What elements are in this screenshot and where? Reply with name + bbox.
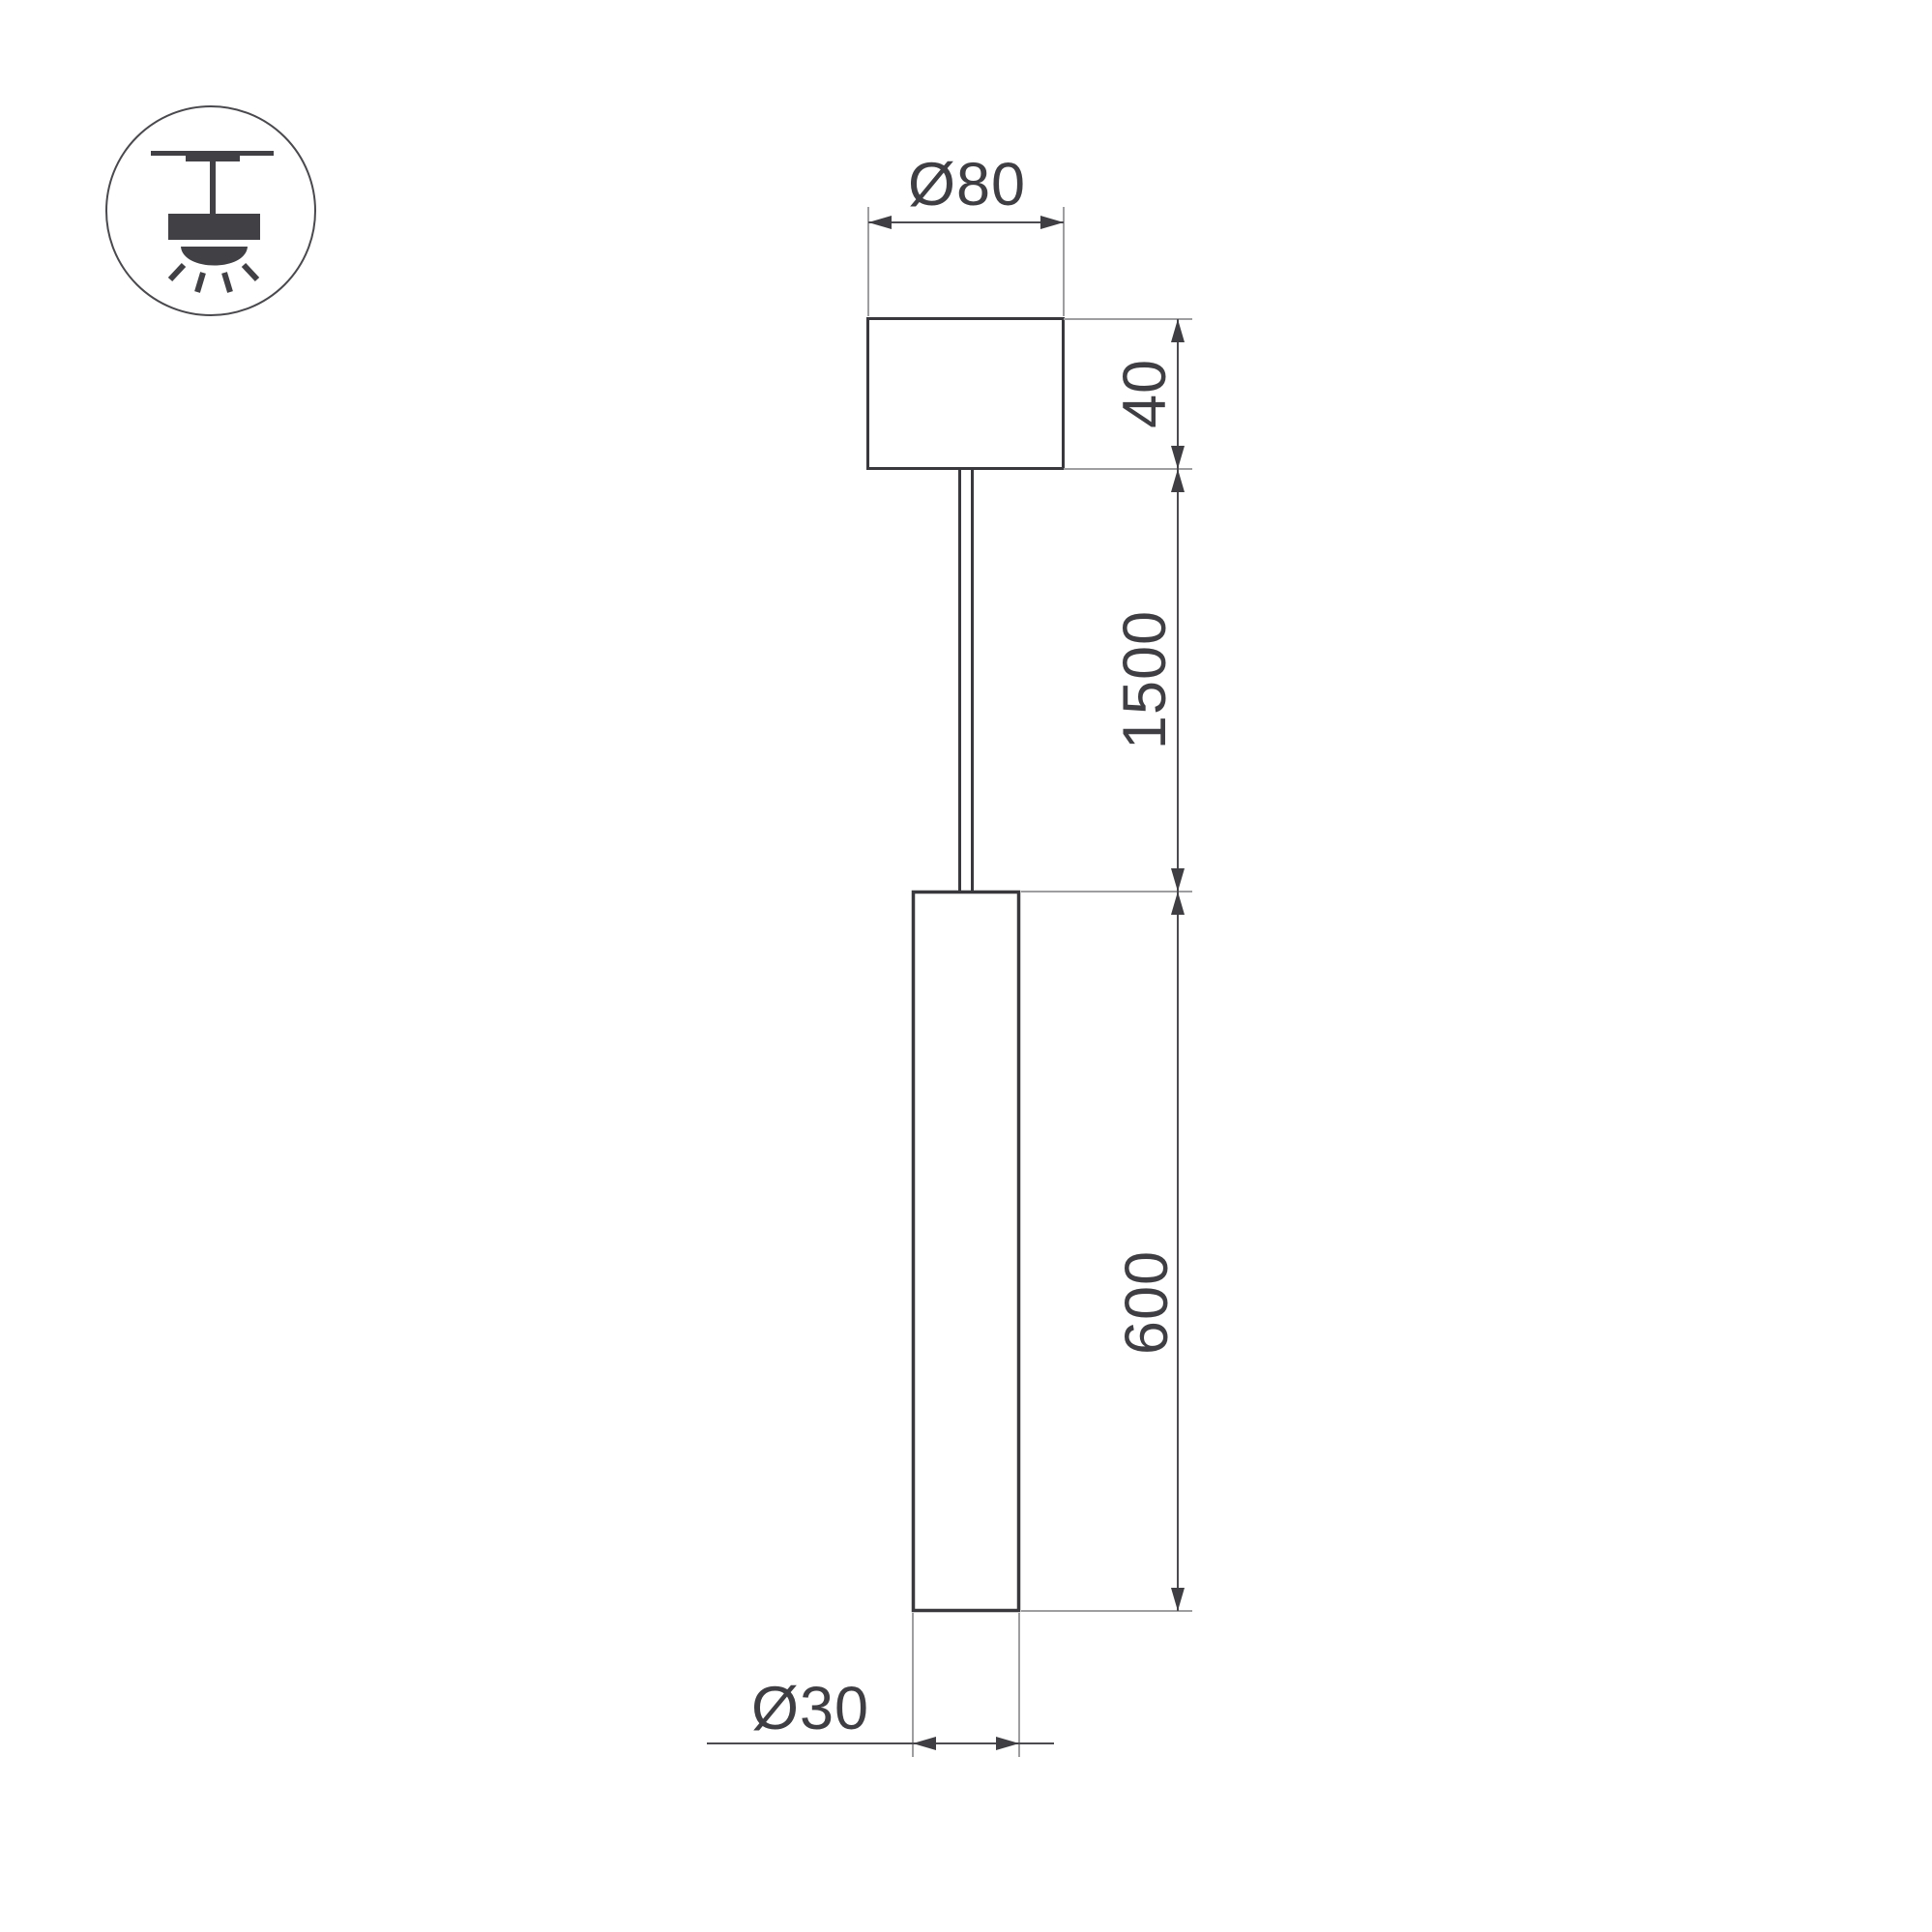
arrowhead-up-icon: [1171, 469, 1185, 492]
technical-drawing: Ø80 40 1500 600 Ø30: [0, 0, 1932, 1932]
canopy-outline: [868, 319, 1064, 469]
arrowhead-up-icon: [1171, 319, 1185, 342]
dimension-tube-length: 600: [1021, 892, 1192, 1611]
dimension-canopy-height: 40: [1064, 319, 1192, 469]
drawing-canvas: Ø80 40 1500 600 Ø30: [0, 0, 1932, 1932]
arrowhead-up-icon: [1171, 892, 1185, 915]
dimension-canopy-diameter: Ø80: [868, 151, 1064, 316]
arrowhead-down-icon: [1171, 868, 1185, 892]
dimension-suspension-length: 1500: [1021, 469, 1192, 892]
dimension-tube-diameter: Ø30: [707, 1613, 1054, 1757]
arrowhead-right-icon: [1040, 216, 1064, 229]
lamp-outline: [868, 319, 1064, 1611]
dimension-label-canopy-height: 40: [1111, 359, 1179, 428]
ceiling-pendant-light-icon: [106, 106, 315, 315]
icon-stem: [210, 159, 216, 216]
arrowhead-right-icon: [996, 1737, 1019, 1750]
lamp-tube-outline: [914, 893, 1019, 1611]
dimension-label-canopy-diameter: Ø80: [908, 151, 1026, 219]
icon-lamp-body: [168, 214, 260, 240]
dimension-label-suspension-length: 1500: [1111, 610, 1179, 749]
dimension-label-tube-length: 600: [1113, 1250, 1181, 1355]
arrowhead-left-icon: [868, 216, 892, 229]
arrowhead-left-icon: [913, 1737, 936, 1750]
arrowhead-down-icon: [1171, 1588, 1185, 1611]
arrowhead-down-icon: [1171, 446, 1185, 469]
dimension-label-tube-diameter: Ø30: [751, 1675, 869, 1742]
